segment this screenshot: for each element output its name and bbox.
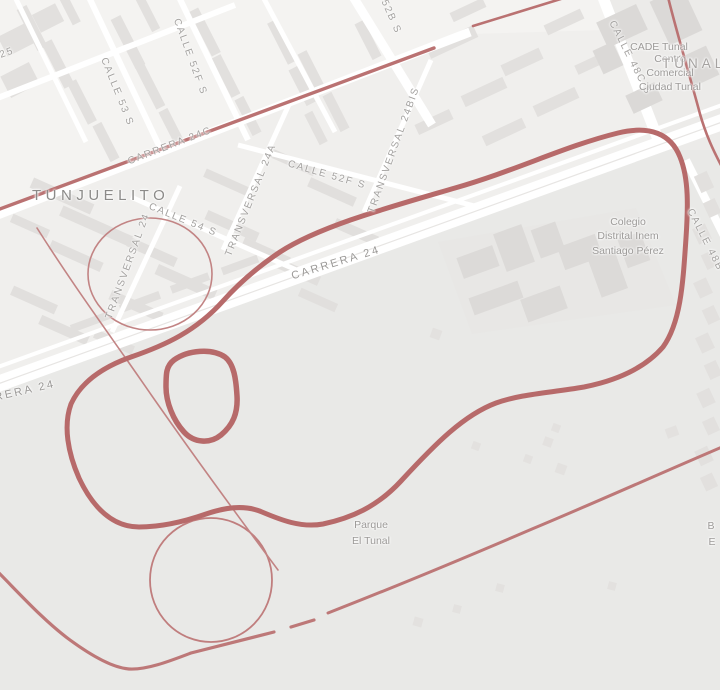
map-canvas[interactable]: TUNJUELITO CARRERA 24 RRERA 24 CARRERA 2… xyxy=(0,0,720,690)
map-graphics xyxy=(0,0,720,690)
